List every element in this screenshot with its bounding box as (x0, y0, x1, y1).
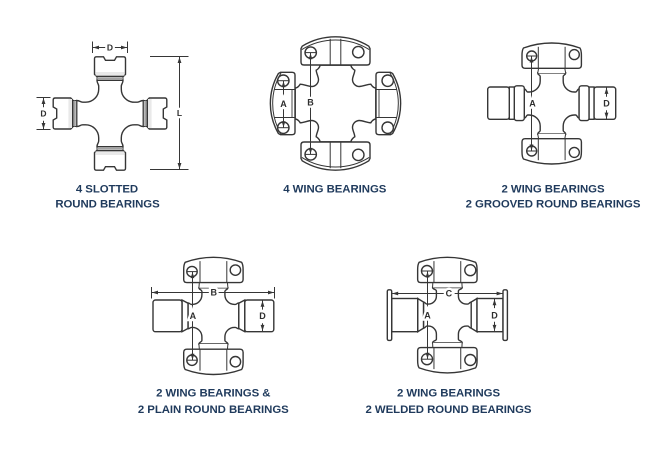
svg-text:2 WING BEARINGS: 2 WING BEARINGS (397, 387, 500, 399)
svg-text:4 SLOTTED: 4 SLOTTED (76, 184, 138, 196)
svg-text:D: D (40, 109, 46, 119)
svg-text:2 WING BEARINGS: 2 WING BEARINGS (501, 184, 604, 196)
svg-text:D: D (107, 43, 113, 53)
svg-text:A: A (424, 311, 431, 321)
svg-text:2 WELDED ROUND BEARINGS: 2 WELDED ROUND BEARINGS (366, 404, 532, 416)
svg-text:D: D (259, 311, 266, 321)
svg-text:D: D (603, 98, 610, 108)
svg-text:A: A (280, 99, 287, 109)
svg-text:C: C (446, 289, 453, 299)
svg-text:B: B (307, 97, 314, 107)
svg-text:4 WING BEARINGS: 4 WING BEARINGS (283, 184, 386, 196)
svg-text:D: D (491, 311, 498, 321)
svg-text:2 WING BEARINGS &: 2 WING BEARINGS & (156, 387, 270, 399)
svg-text:B: B (210, 288, 217, 298)
svg-text:2 GROOVED ROUND BEARINGS: 2 GROOVED ROUND BEARINGS (466, 199, 641, 211)
svg-text:ROUND BEARINGS: ROUND BEARINGS (55, 198, 160, 210)
svg-text:A: A (190, 311, 197, 321)
svg-text:A: A (529, 98, 536, 108)
svg-text:L: L (177, 108, 182, 118)
svg-text:2 PLAIN ROUND BEARINGS: 2 PLAIN ROUND BEARINGS (138, 404, 289, 416)
